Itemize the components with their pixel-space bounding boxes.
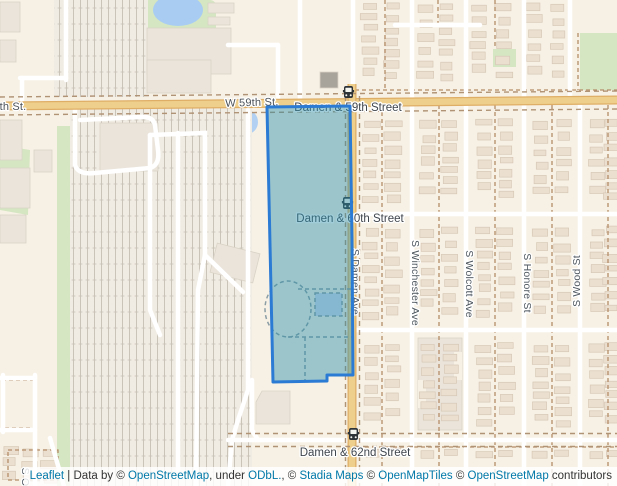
building: [496, 72, 513, 78]
building: [558, 292, 571, 300]
street-label-s-wolcott: S Wolcott Ave: [463, 250, 475, 318]
station-label-damen-62nd: Damen & 62nd Street: [300, 447, 411, 459]
building: [590, 252, 603, 258]
building: [384, 285, 400, 293]
building: [552, 71, 564, 77]
building: [387, 195, 400, 203]
building: [386, 356, 399, 362]
building: [439, 28, 451, 34]
building: [445, 449, 458, 455]
building: [534, 150, 546, 156]
building: [365, 121, 381, 127]
building: [365, 346, 379, 354]
building: [605, 343, 617, 351]
building: [499, 367, 515, 375]
building: [441, 188, 457, 194]
building: [364, 171, 376, 178]
building: [445, 132, 458, 140]
building: [420, 120, 437, 128]
building: [590, 135, 603, 142]
building: [555, 187, 568, 193]
building: [604, 144, 617, 150]
building: [443, 354, 457, 361]
building: [590, 452, 603, 459]
building: [496, 228, 512, 235]
building: [499, 450, 513, 456]
attribution-link[interactable]: OpenStreetMap: [468, 470, 549, 482]
attribution-link[interactable]: OpenMapTiles: [378, 470, 452, 482]
building: [421, 280, 434, 286]
building: [475, 346, 491, 353]
building: [533, 281, 549, 287]
building: [499, 252, 510, 260]
building: [604, 158, 617, 166]
building: [441, 166, 458, 172]
building: [498, 303, 512, 311]
building: [441, 62, 452, 70]
building: [590, 147, 602, 153]
building: [443, 144, 456, 152]
building: [535, 257, 547, 263]
building: [604, 239, 617, 247]
building: [532, 356, 549, 364]
building: [476, 119, 492, 125]
building: [499, 277, 515, 285]
building: [422, 146, 436, 154]
building: [421, 344, 434, 350]
building: [527, 55, 540, 62]
building: [605, 416, 617, 423]
building: [472, 32, 486, 38]
building: [470, 42, 486, 49]
building: [603, 277, 617, 284]
building: [476, 239, 493, 247]
building: [387, 307, 398, 315]
building: [499, 17, 510, 25]
building: [439, 40, 455, 46]
building: [364, 397, 380, 405]
building: [441, 403, 456, 411]
building: [423, 414, 434, 420]
building: [501, 292, 514, 298]
building: [477, 147, 492, 155]
attribution-link[interactable]: Leaflet: [30, 470, 65, 482]
building: [534, 306, 545, 313]
building: [478, 407, 491, 414]
building: [536, 368, 548, 376]
building: [444, 377, 457, 383]
building: [386, 121, 403, 127]
building: [589, 359, 602, 367]
building: [366, 228, 378, 236]
building: [476, 452, 493, 458]
building: [590, 120, 604, 128]
building: [362, 197, 378, 203]
building: [556, 397, 569, 404]
building: [591, 303, 605, 311]
building: [605, 119, 617, 126]
building: [526, 15, 543, 23]
building: [500, 394, 512, 401]
street-label-s-winchester: S Winchester Ave: [409, 240, 421, 326]
attribution-bar: Leaflet | Data by © OpenStreetMap, under…: [24, 467, 617, 486]
building: [499, 146, 512, 154]
building: [589, 160, 606, 167]
building: [421, 157, 434, 165]
building: [528, 44, 541, 50]
building: [442, 308, 458, 315]
building: [362, 300, 378, 306]
building: [591, 265, 604, 273]
building: [534, 136, 547, 143]
building: [365, 357, 378, 365]
building: [497, 239, 513, 246]
building: [590, 385, 604, 393]
building: [532, 451, 547, 458]
building: [553, 19, 564, 26]
building: [440, 4, 453, 10]
building: [589, 344, 604, 352]
building: [605, 367, 617, 375]
building: [592, 293, 606, 300]
building: [478, 160, 491, 168]
building: [440, 15, 453, 21]
building: [476, 310, 489, 317]
building: [556, 421, 570, 427]
building: [604, 355, 617, 363]
building: [2, 471, 15, 479]
building: [478, 133, 491, 140]
building: [386, 345, 400, 351]
building: [500, 180, 512, 188]
building: [362, 47, 379, 54]
building: [557, 159, 572, 166]
building: [442, 121, 457, 128]
building: [555, 407, 572, 415]
building: [605, 266, 617, 272]
building: [532, 229, 547, 236]
building: [534, 175, 546, 183]
building: [418, 34, 434, 42]
building: [534, 346, 548, 352]
building: [472, 64, 486, 72]
attribution-text: , under: [209, 470, 248, 482]
building: [364, 184, 378, 190]
building: [501, 132, 513, 140]
building: [479, 370, 492, 378]
attribution-text: | Data by ©: [64, 470, 128, 482]
building: [552, 56, 563, 64]
building: [385, 270, 402, 278]
building: [499, 191, 514, 197]
building: [386, 16, 398, 22]
street-label-w58-partial: th St.: [0, 101, 26, 113]
building: [364, 58, 377, 64]
building: [555, 450, 569, 456]
building: [591, 172, 605, 179]
building: [498, 343, 514, 349]
building: [441, 254, 457, 261]
building: [387, 3, 399, 9]
building: [421, 290, 437, 296]
building: [557, 148, 571, 156]
building: [476, 227, 490, 234]
building: [496, 56, 510, 64]
building: [500, 169, 512, 177]
building: [365, 148, 376, 154]
building: [557, 120, 571, 127]
building: [551, 4, 564, 11]
attribution-link[interactable]: Stadia Maps: [299, 470, 363, 482]
building: [446, 241, 457, 248]
building: [423, 136, 436, 143]
building: [553, 31, 565, 38]
building: [443, 157, 459, 163]
building: [419, 392, 435, 399]
building: [478, 183, 491, 190]
building: [498, 263, 511, 269]
building: [421, 243, 435, 251]
bus-stop-icon-59th: [343, 86, 354, 98]
building: [479, 284, 490, 292]
building: [385, 160, 400, 169]
building: [442, 415, 459, 421]
building: [533, 382, 548, 389]
building: [386, 393, 398, 401]
building: [605, 292, 617, 299]
street-label-s-honore: S Honore St: [521, 253, 533, 312]
building: [497, 42, 512, 49]
building: [533, 294, 549, 300]
building: [385, 73, 396, 79]
building: [421, 451, 434, 459]
building: [557, 269, 569, 276]
building: [478, 262, 489, 269]
building: [386, 243, 397, 251]
bus-stop-icon-62nd: [348, 428, 359, 440]
building: [419, 47, 431, 54]
building: [441, 389, 457, 396]
building: [365, 277, 377, 283]
building: [385, 230, 400, 238]
building: [497, 354, 511, 362]
building: [360, 14, 377, 20]
building: [364, 413, 381, 420]
attribution-text: contributors: [549, 470, 612, 482]
building: [384, 61, 400, 68]
building: [443, 177, 457, 184]
attribution-link[interactable]: ODbL.: [248, 470, 281, 482]
building: [557, 172, 569, 180]
building: [385, 257, 400, 265]
building: [422, 355, 436, 362]
building: [363, 159, 377, 166]
building: [603, 254, 617, 262]
building: [604, 402, 617, 410]
building: [529, 30, 542, 38]
building: [556, 256, 570, 264]
building: [417, 71, 434, 78]
map-canvas[interactable]: th St. W 59th St. S Damen Ave S Winchest…: [0, 0, 617, 486]
building: [537, 243, 548, 251]
building: [555, 228, 568, 236]
building: [496, 30, 508, 38]
building: [386, 409, 400, 416]
building: [443, 294, 455, 302]
building: [603, 193, 617, 199]
building: [478, 394, 490, 402]
building: [592, 230, 604, 236]
building: [445, 267, 456, 273]
building: [554, 244, 571, 252]
building: [533, 121, 548, 129]
building: [535, 414, 548, 420]
building: [420, 230, 434, 238]
building: [559, 279, 570, 285]
building: [444, 365, 458, 373]
building: [386, 28, 399, 34]
building: [558, 132, 569, 140]
building: [364, 24, 378, 30]
building: [385, 146, 402, 155]
attribution-text: , ©: [281, 470, 299, 482]
building: [439, 49, 452, 55]
building: [385, 379, 400, 387]
building: [385, 49, 400, 57]
building: [418, 61, 433, 67]
building: [421, 402, 436, 409]
building: [550, 44, 563, 50]
building: [385, 298, 399, 304]
street-label-s-wood: S Wood St: [571, 255, 583, 307]
building: [363, 135, 379, 142]
building: [364, 4, 377, 10]
building: [499, 407, 514, 414]
building: [477, 358, 493, 365]
building: [477, 251, 492, 258]
building: [477, 420, 492, 427]
building: [590, 371, 604, 379]
building: [589, 411, 602, 417]
building: [534, 271, 549, 278]
building: [388, 366, 401, 372]
building: [498, 119, 512, 126]
building: [444, 344, 459, 351]
building: [536, 162, 548, 169]
building: [500, 157, 513, 163]
building: [362, 242, 377, 250]
building: [419, 187, 435, 194]
building: [477, 171, 491, 178]
building: [365, 289, 379, 296]
building: [554, 358, 570, 366]
building: [420, 173, 434, 179]
building: [556, 374, 571, 381]
attribution-link[interactable]: OpenStreetMap: [128, 470, 209, 482]
building: [384, 172, 400, 178]
building: [479, 275, 491, 281]
building: [590, 242, 602, 248]
building: [423, 381, 434, 388]
building: [479, 382, 490, 391]
building: [499, 382, 516, 389]
building: [528, 66, 542, 74]
building: [590, 186, 606, 193]
selected-area-polygon[interactable]: [267, 106, 353, 382]
building: [495, 3, 511, 10]
building: [441, 74, 453, 81]
building: [441, 227, 457, 233]
building: [472, 52, 485, 59]
building: [445, 280, 458, 287]
building: [362, 266, 379, 273]
building: [558, 306, 571, 313]
building: [478, 299, 490, 305]
building: [605, 305, 617, 311]
building: [365, 253, 378, 259]
building: [418, 5, 433, 12]
building: [385, 38, 398, 46]
building: [554, 387, 570, 394]
attribution-text: ©: [453, 470, 468, 482]
building: [384, 132, 400, 140]
building: [526, 3, 540, 11]
building: [589, 399, 604, 407]
building: [533, 187, 549, 193]
building: [555, 346, 568, 352]
map-tiles: th St. W 59th St. S Damen Ave S Winchest…: [0, 0, 617, 486]
building: [362, 313, 379, 320]
building: [365, 385, 378, 393]
building: [363, 68, 374, 76]
building: [366, 373, 379, 380]
building: [362, 36, 376, 42]
building: [533, 402, 547, 410]
building: [3, 458, 15, 466]
building: [422, 268, 435, 275]
building: [533, 392, 549, 398]
building: [384, 183, 400, 191]
building: [421, 299, 433, 306]
building: [605, 381, 617, 387]
building: [421, 368, 433, 376]
building: [472, 5, 487, 11]
attribution-text: ©: [363, 470, 378, 482]
